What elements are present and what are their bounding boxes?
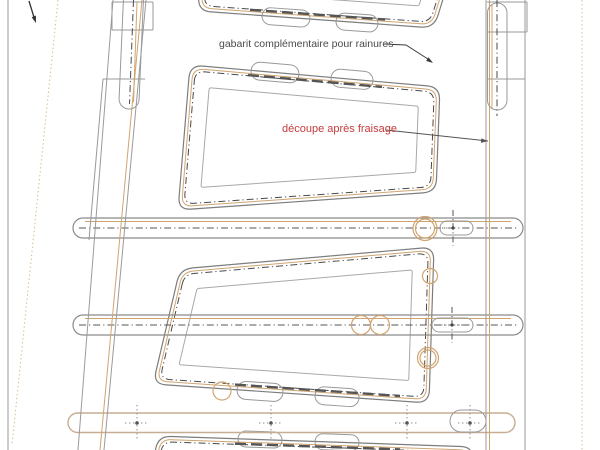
label-cut-after-milling: découpe après fraisage — [282, 123, 397, 135]
cad-drawing-viewport: gabarit complémentaire pour rainures déc… — [0, 0, 600, 450]
technical-drawing — [0, 0, 600, 450]
label-groove-template: gabarit complémentaire pour rainures — [219, 39, 394, 51]
